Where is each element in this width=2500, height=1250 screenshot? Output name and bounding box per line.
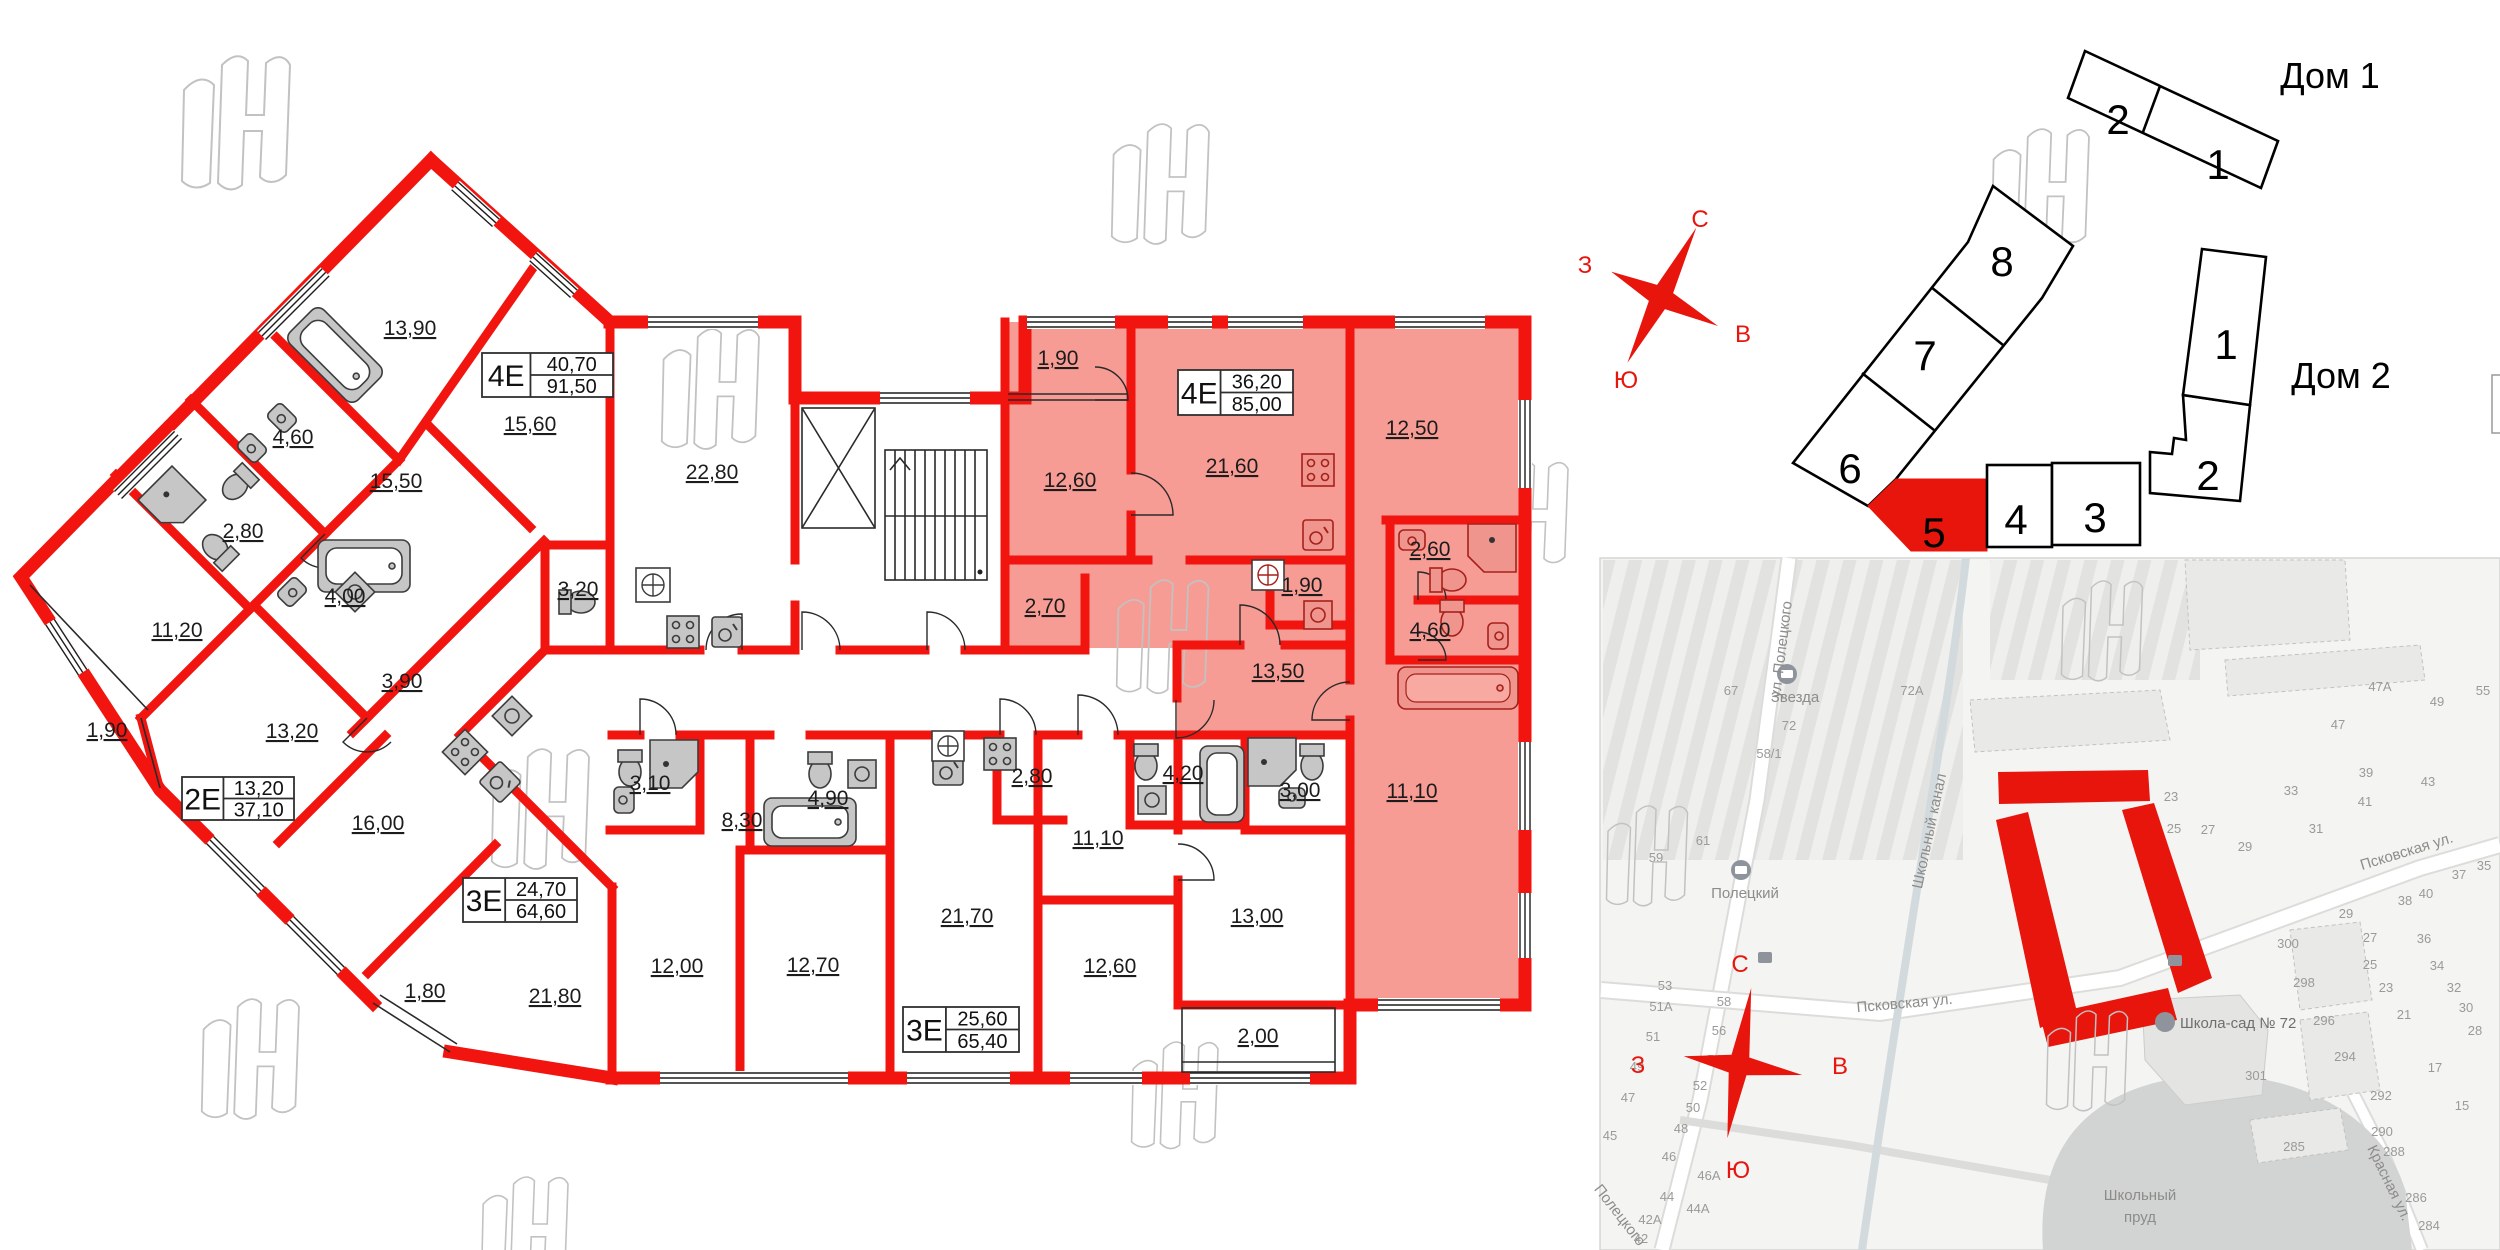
room-area-label: 2,60 bbox=[1410, 538, 1451, 561]
room-area-label: 4,60 bbox=[1410, 619, 1451, 642]
site-section-number-7[interactable]: 7 bbox=[1913, 332, 1936, 379]
apartment-type: 4Е bbox=[1181, 378, 1218, 411]
apartment-total-area: 64,60 bbox=[516, 901, 566, 923]
room-area-label: 11,10 bbox=[1073, 827, 1124, 850]
map-house-number: 23 bbox=[2379, 980, 2393, 995]
watermark-logo bbox=[1132, 1042, 1218, 1149]
room-area-label: 11,10 bbox=[1387, 780, 1438, 803]
map-house-number: 15 bbox=[2455, 1098, 2469, 1113]
compass-west: З bbox=[1631, 1052, 1646, 1079]
house2-title: Дом 2 bbox=[2291, 355, 2391, 396]
room-area-label: 13,90 bbox=[384, 317, 437, 340]
compass-south: Ю bbox=[1726, 1157, 1750, 1184]
bus-stop-icon bbox=[1758, 952, 1772, 963]
apartment-type: 3Е bbox=[466, 885, 503, 918]
room-area-label: 4,20 bbox=[1163, 762, 1204, 785]
apartment-living-area: 24,70 bbox=[516, 879, 566, 901]
room-area-label: 3,00 bbox=[1280, 779, 1321, 802]
room-area-label: 2,80 bbox=[223, 520, 264, 543]
room-area-label: 12,50 bbox=[1386, 417, 1439, 440]
room-area-label: 1,90 bbox=[87, 719, 128, 742]
room-area-label: 13,00 bbox=[1231, 905, 1284, 928]
map-house-number: 52 bbox=[1693, 1078, 1707, 1093]
house1-title: Дом 1 bbox=[2280, 55, 2380, 96]
map-house-number: 42 bbox=[1634, 1231, 1648, 1246]
map-house-number: 50 bbox=[1686, 1100, 1700, 1115]
site-section-number-6[interactable]: 6 bbox=[1838, 445, 1861, 492]
site-section-number-1[interactable]: 1 bbox=[2214, 321, 2237, 368]
map-house-number: 67 bbox=[1724, 683, 1738, 698]
map-house-number: 47 bbox=[1621, 1090, 1635, 1105]
map-house-number: 47 bbox=[2331, 717, 2345, 732]
room-area-label: 21,60 bbox=[1206, 455, 1259, 478]
map-house-number: 25 bbox=[2363, 957, 2377, 972]
compass-east: В bbox=[1735, 321, 1751, 348]
map-house-number: 29 bbox=[2238, 839, 2252, 854]
map-house-number: 46А bbox=[1697, 1168, 1720, 1183]
apartment-info-box: 4Е40,7091,50 bbox=[482, 353, 613, 398]
watermark-logo bbox=[482, 1177, 568, 1250]
map-house-number: 40 bbox=[2419, 886, 2433, 901]
apartment-living-area: 36,20 bbox=[1232, 371, 1282, 393]
room-area-label: 12,60 bbox=[1084, 955, 1137, 978]
map-house-number: 21 bbox=[2397, 1007, 2411, 1022]
room-area-label: 12,00 bbox=[651, 955, 704, 978]
room-area-label: 4,00 bbox=[325, 585, 366, 608]
map-house-number: 288 bbox=[2383, 1144, 2405, 1159]
map-house-number: 28 bbox=[2468, 1023, 2482, 1038]
map-house-number: 53 bbox=[1658, 978, 1672, 993]
room-area-label: 21,70 bbox=[941, 905, 994, 928]
apartment-info-box: 2Е13,2037,10 bbox=[182, 777, 294, 821]
room-area-label: 12,60 bbox=[1044, 469, 1097, 492]
map-house-number: 35 bbox=[2477, 858, 2491, 873]
map-house-number: 298 bbox=[2293, 975, 2315, 990]
bus-stop-icon bbox=[2168, 955, 2182, 966]
map-house-number: 34 bbox=[2430, 958, 2444, 973]
compass-south: Ю bbox=[1614, 367, 1638, 394]
map-house-number: 296 bbox=[2313, 1013, 2335, 1028]
map-building bbox=[2185, 560, 2350, 650]
apartment-living-area: 13,20 bbox=[234, 778, 284, 800]
site-section-number-5[interactable]: 5 bbox=[1922, 509, 1945, 556]
map-house-number: 43 bbox=[2421, 774, 2435, 789]
edge-ui-fragment bbox=[2492, 375, 2500, 433]
site-section-number-2[interactable]: 2 bbox=[2196, 452, 2219, 499]
room-area-label: 4,90 bbox=[808, 787, 849, 810]
room-area-label: 4,60 bbox=[273, 426, 314, 449]
map-house-number: 29 bbox=[2339, 906, 2353, 921]
map-house-number: 51А bbox=[1649, 999, 1672, 1014]
compass-east: В bbox=[1832, 1053, 1848, 1080]
room-area-label: 15,60 bbox=[504, 413, 557, 436]
room-area-label: 8,30 bbox=[722, 809, 763, 832]
compass-north: С bbox=[1731, 951, 1748, 978]
compass-north: С bbox=[1691, 206, 1708, 233]
room-area-label: 16,00 bbox=[352, 812, 405, 835]
map-house-number: 27 bbox=[2201, 822, 2215, 837]
map-house-number: 38 bbox=[2398, 893, 2412, 908]
school-icon bbox=[2155, 1012, 2175, 1032]
map-house-number: 41 bbox=[2358, 794, 2372, 809]
map-house-number: 56 bbox=[1712, 1023, 1726, 1038]
room-area-label: 2,00 bbox=[1238, 1025, 1279, 1048]
map-house-number: 292 bbox=[2370, 1088, 2392, 1103]
apartment-type: 2Е bbox=[184, 784, 221, 817]
map-house-number: 51 bbox=[1646, 1029, 1660, 1044]
map-house-number: 48 bbox=[1674, 1121, 1688, 1136]
room-area-label: 22,80 bbox=[686, 461, 739, 484]
site-section-number-1[interactable]: 1 bbox=[2206, 141, 2229, 188]
map-house-number: 47А bbox=[2368, 679, 2391, 694]
room-area-label: 1,90 bbox=[1282, 574, 1323, 597]
map-house-number: 61 bbox=[1696, 833, 1710, 848]
apartment-type: 4Е bbox=[488, 360, 525, 393]
site-section-number-4[interactable]: 4 bbox=[2004, 496, 2027, 543]
apartment-info-box: 4Е36,2085,00 bbox=[1178, 370, 1293, 416]
room-area-label: 13,50 bbox=[1252, 660, 1305, 683]
map-house-number: 17 bbox=[2428, 1060, 2442, 1075]
map-house-number: 290 bbox=[2371, 1124, 2393, 1139]
map-house-number: 25 bbox=[2167, 821, 2181, 836]
site-section-number-2[interactable]: 2 bbox=[2106, 96, 2129, 143]
apartment-info-box: 3Е24,7064,60 bbox=[463, 878, 577, 923]
apartment-living-area: 40,70 bbox=[547, 354, 597, 376]
site-section-number-8[interactable]: 8 bbox=[1990, 238, 2013, 285]
room-area-label: 13,20 bbox=[266, 720, 319, 743]
map-house-number: 55 bbox=[2476, 683, 2490, 698]
map-house-number: 32 bbox=[2447, 980, 2461, 995]
map-house-number: 23 bbox=[2164, 789, 2178, 804]
site-house1-outline[interactable] bbox=[2068, 51, 2278, 188]
map-house-number: 46 bbox=[1662, 1149, 1676, 1164]
room-area-label: 12,70 bbox=[787, 954, 840, 977]
map-house-number: 30 bbox=[2459, 1000, 2473, 1015]
apartment-total-area: 37,10 bbox=[234, 799, 284, 821]
room-area-label: 1,80 bbox=[405, 980, 446, 1003]
map-house-number: 286 bbox=[2405, 1190, 2427, 1205]
map-house-number: 44А bbox=[1686, 1201, 1709, 1216]
room-area-label: 3,20 bbox=[558, 578, 599, 601]
room-area-label: 3,10 bbox=[630, 772, 671, 795]
map-house-number: 33 bbox=[2284, 783, 2298, 798]
apartment-type: 3Е bbox=[906, 1015, 943, 1048]
transit-stop-poletskiy-icon bbox=[1731, 860, 1751, 880]
apartment-info-box: 3Е25,6065,40 bbox=[903, 1007, 1019, 1053]
apartment-total-area: 85,00 bbox=[1232, 394, 1282, 416]
watermark-logo bbox=[182, 56, 290, 189]
apartment-total-area: 91,50 bbox=[547, 376, 597, 398]
map-house-number: 39 bbox=[2359, 765, 2373, 780]
stop-label: Звезда bbox=[1771, 689, 1820, 706]
map-house-number: 300 bbox=[2277, 936, 2299, 951]
map-building bbox=[2290, 922, 2372, 1010]
watermark-logo bbox=[202, 999, 299, 1119]
map-house-number: 31 bbox=[2309, 821, 2323, 836]
map-house-number: 294 bbox=[2334, 1049, 2356, 1064]
room-area-label: 2,80 bbox=[1012, 765, 1053, 788]
pond-label: пруд bbox=[2124, 1209, 2156, 1226]
room-area-label: 15,50 bbox=[370, 470, 423, 493]
map-house-number: 45 bbox=[1603, 1128, 1617, 1143]
apartment-total-area: 65,40 bbox=[957, 1031, 1007, 1053]
school-label: Школа-сад № 72 bbox=[2180, 1015, 2296, 1032]
map-house-number: 285 bbox=[2283, 1139, 2305, 1154]
floor-plan: 13,9015,604,6015,502,8022,803,204,0011,2… bbox=[21, 56, 1568, 1250]
apartment-living-area: 25,60 bbox=[957, 1008, 1007, 1030]
compass-west: З bbox=[1578, 252, 1593, 279]
map-house-number: 301 bbox=[2245, 1068, 2267, 1083]
stop-label: Полецкий bbox=[1711, 885, 1779, 902]
watermark-logo bbox=[1112, 124, 1209, 244]
room-area-label: 1,90 bbox=[1038, 347, 1079, 370]
building-site-plan: Дом 1 Дом 2 2187654321 С В Ю З bbox=[1578, 51, 2500, 556]
room-area-label: 3,90 bbox=[382, 670, 423, 693]
map-house-number: 72А bbox=[1900, 683, 1923, 698]
site-compass: С В Ю З bbox=[1578, 202, 1754, 394]
floorplan-page: ул. Полецкого Псковская ул. Псковская ул… bbox=[0, 0, 2500, 1250]
room-area-label: 21,80 bbox=[529, 985, 582, 1008]
site-section-number-3[interactable]: 3 bbox=[2083, 494, 2106, 541]
elevator bbox=[802, 408, 875, 528]
map-house-number: 37 bbox=[2452, 867, 2466, 882]
map-house-number: 72 bbox=[1782, 718, 1796, 733]
room-area-label: 2,70 bbox=[1025, 595, 1066, 618]
room-area-label: 11,20 bbox=[152, 619, 203, 642]
pond-label: Школьный bbox=[2104, 1187, 2177, 1204]
map-house-number: 58/1 bbox=[1756, 746, 1781, 761]
map-house-number: 44 bbox=[1660, 1189, 1674, 1204]
map-house-number: 49 bbox=[2430, 694, 2444, 709]
map-house-number: 42А bbox=[1638, 1212, 1661, 1227]
map-house-number: 27 bbox=[2363, 930, 2377, 945]
staircase bbox=[885, 450, 987, 580]
map-house-number: 36 bbox=[2417, 931, 2431, 946]
watermark-logo bbox=[662, 329, 759, 449]
location-map[interactable]: ул. Полецкого Псковская ул. Псковская ул… bbox=[1590, 558, 2500, 1250]
map-house-number: 58 bbox=[1717, 994, 1731, 1009]
map-industrial-blocks bbox=[1990, 560, 2200, 680]
map-house-number: 284 bbox=[2418, 1218, 2440, 1233]
